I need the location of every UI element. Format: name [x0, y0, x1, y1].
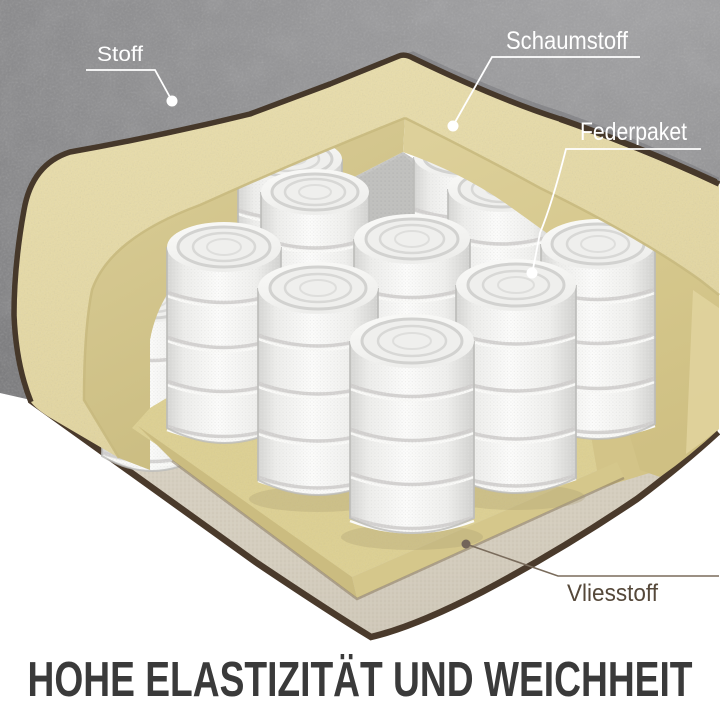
svg-text:Stoff: Stoff — [97, 43, 143, 66]
svg-text:HOHE ELASTIZITÄT UND WEICHHEIT: HOHE ELASTIZITÄT UND WEICHHEIT — [28, 653, 693, 707]
svg-text:Schaumstoff: Schaumstoff — [506, 27, 628, 55]
svg-text:Federpaket: Federpaket — [580, 118, 687, 146]
svg-text:Vliesstoff: Vliesstoff — [567, 580, 658, 607]
